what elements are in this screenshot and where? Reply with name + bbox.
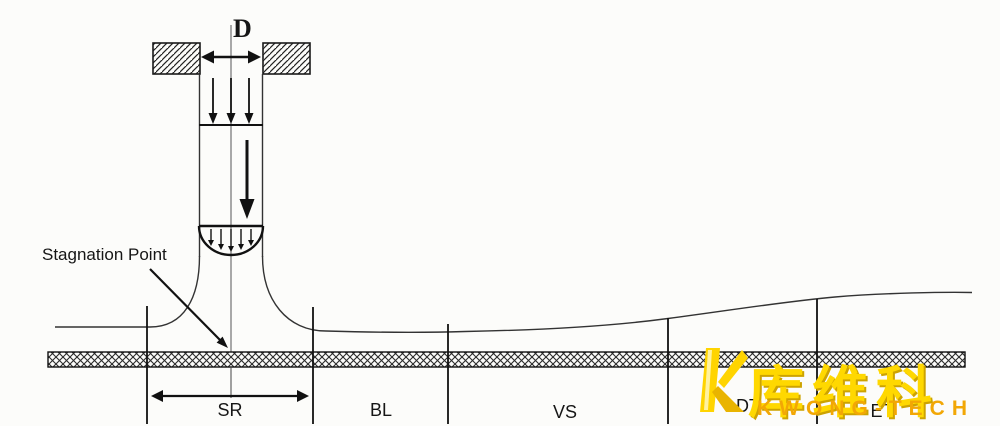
diameter-label: D (233, 16, 252, 42)
jet-flare-left (55, 256, 200, 327)
jet-impingement-diagram: D Stagnation Point SR BL VS DT ET 库维科技 K… (0, 0, 1000, 426)
jet-velocity-arrow (240, 140, 255, 219)
velocity-profile-arc (199, 226, 263, 255)
stagnation-pointer-arrow (150, 269, 228, 348)
boundary-layer-edge-curve (263, 256, 973, 332)
region-label-sr: SR (217, 401, 242, 419)
stagnation-point-label: Stagnation Point (42, 246, 167, 263)
watermark-latin-text: KWONG-TECH (757, 397, 974, 421)
region-label-vs: VS (553, 403, 577, 421)
region-label-bl: BL (370, 401, 392, 419)
kwong-tech-watermark: 库维科技 KWONG-TECH (698, 346, 1000, 426)
kwong-tech-k-logo (698, 346, 750, 416)
nozzle-flow-arrows (209, 78, 254, 124)
